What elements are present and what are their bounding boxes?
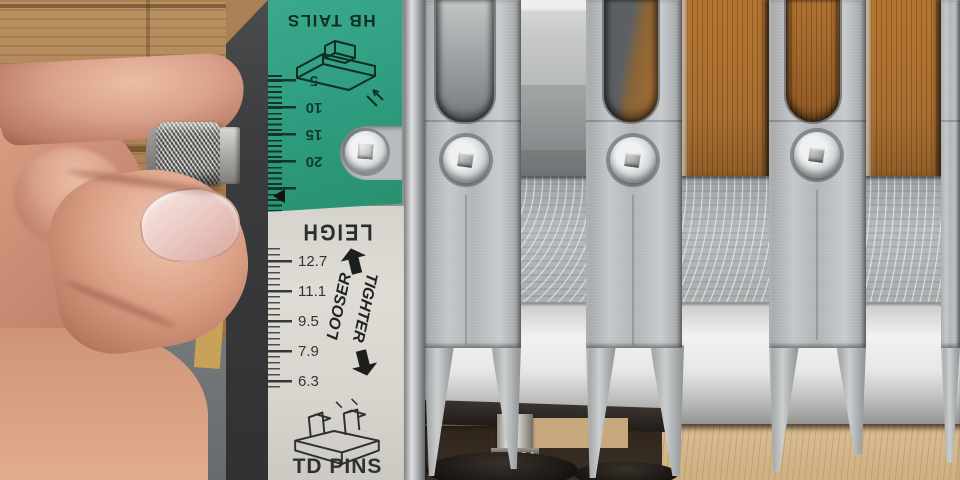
pins-scale-value: 12.7 (298, 253, 338, 271)
clamp-screw (794, 132, 840, 178)
guide-finger-plate (424, 0, 521, 348)
guide-finger-plate (941, 0, 960, 348)
index-pointer-icon (273, 189, 285, 203)
tails-scale-value: 5 (299, 70, 329, 90)
clamp-screw (610, 137, 656, 183)
square-drive-socket (808, 146, 825, 163)
finger-slot (786, 0, 840, 122)
rear-wood-board (866, 0, 941, 194)
td-pins-title: TD PINS (267, 455, 408, 480)
plate-scratch (816, 190, 818, 340)
pins-scale-major-ticks (267, 260, 292, 384)
pins-scale-value: 6.3 (298, 373, 338, 391)
tails-scale-value: 10 (299, 97, 329, 117)
plate-scratch (632, 195, 634, 345)
guide-finger-plate (769, 0, 866, 348)
label-screw (345, 131, 387, 173)
square-drive-socket (624, 151, 641, 168)
wood-behind-bolt (530, 418, 628, 448)
hb-tails-title: HB TAILS (273, 8, 389, 30)
square-drive-socket (457, 151, 474, 168)
clamp-screw (443, 137, 489, 183)
square-drive-socket (357, 143, 373, 159)
finger-slot (436, 0, 494, 122)
tails-scale-value: 15 (299, 124, 329, 144)
knob-collar (220, 127, 240, 184)
clamp-knob (426, 452, 578, 480)
finger-slot (604, 0, 658, 122)
jig-edge-bar (404, 0, 425, 480)
photo-dovetail-jig: HB TAILS 5 10 15 20 LEIGH 12.7 11.1 9.5 … (0, 0, 960, 480)
leigh-logo: LEIGH (287, 214, 387, 244)
plate-scratch (465, 195, 467, 345)
guide-finger-plate (586, 0, 682, 348)
tails-scale-value: 20 (299, 151, 329, 171)
scale-label-strip: HB TAILS 5 10 15 20 LEIGH 12.7 11.1 9.5 … (267, 0, 408, 480)
rear-wood-board (682, 0, 769, 194)
